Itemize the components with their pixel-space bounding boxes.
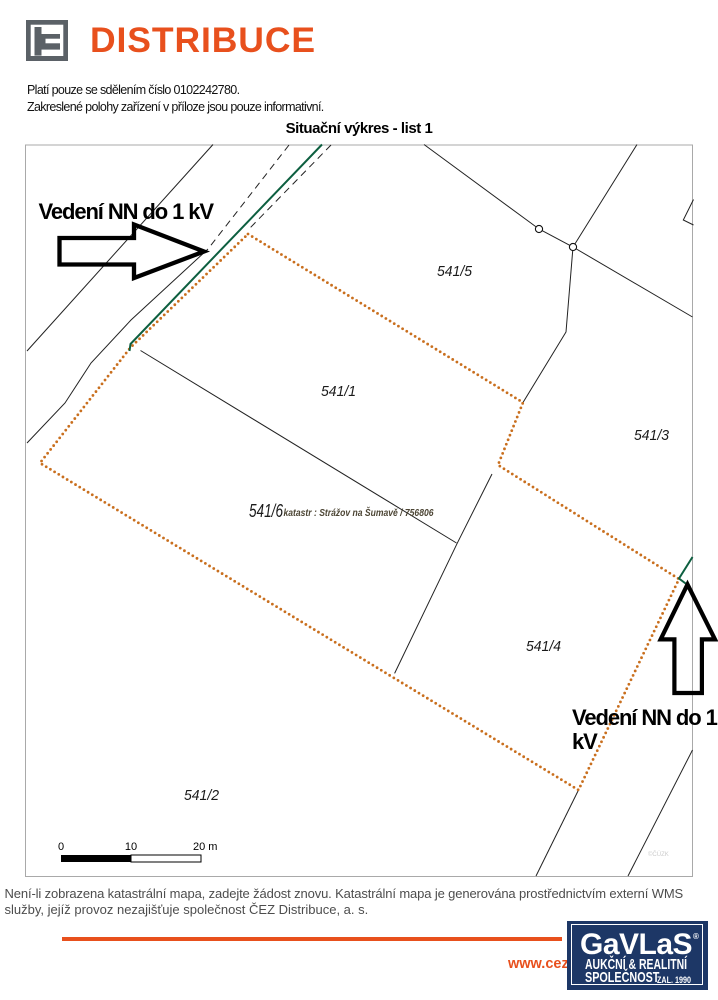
svg-text:541/3: 541/3 <box>634 427 670 444</box>
svg-text:541/5: 541/5 <box>437 263 473 280</box>
svg-text:541/1: 541/1 <box>321 383 356 400</box>
svg-text:541/2: 541/2 <box>184 787 220 804</box>
svg-text:Vedení NN do 1 kV: Vedení NN do 1 kV <box>39 199 215 224</box>
svg-text:Vedení NN do 1: Vedení NN do 1 <box>572 705 718 730</box>
svg-text:10: 10 <box>125 841 137 853</box>
svg-text:20 m: 20 m <box>193 841 217 853</box>
svg-text:katastr : Strážov na Šumavě /: katastr : Strážov na Šumavě / 756806 <box>284 506 434 519</box>
svg-text:541/4: 541/4 <box>526 638 561 655</box>
svg-text:kV: kV <box>572 729 598 754</box>
svg-text:541/6: 541/6 <box>249 500 284 521</box>
svg-text:0: 0 <box>58 841 64 853</box>
svg-text:©ČÚZK: ©ČÚZK <box>648 851 669 858</box>
